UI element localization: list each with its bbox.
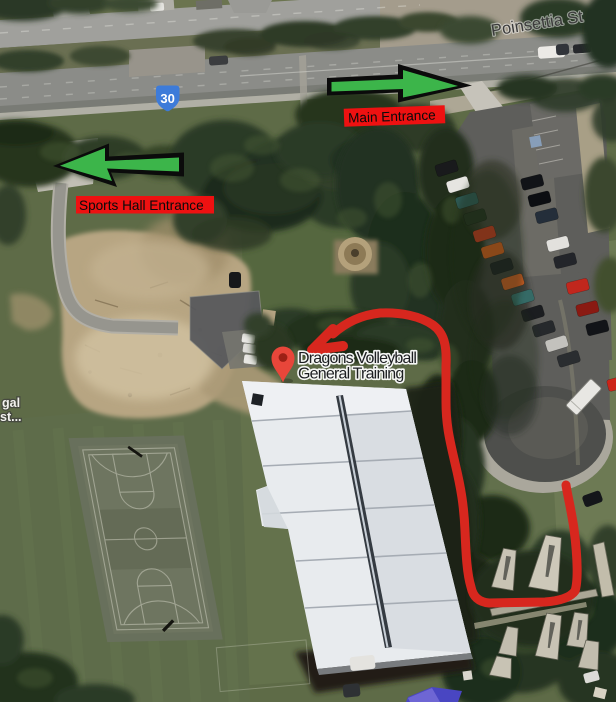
svg-text:Sports Hall Entrance: Sports Hall Entrance [79, 198, 204, 213]
svg-text:st...: st... [0, 410, 22, 424]
svg-text:Main Entrance: Main Entrance [348, 108, 436, 126]
svg-text:Dragons Volleyball: Dragons Volleyball [298, 350, 416, 367]
svg-text:General Training: General Training [298, 366, 404, 383]
svg-text:30: 30 [160, 91, 174, 106]
svg-text:gal: gal [2, 396, 20, 410]
